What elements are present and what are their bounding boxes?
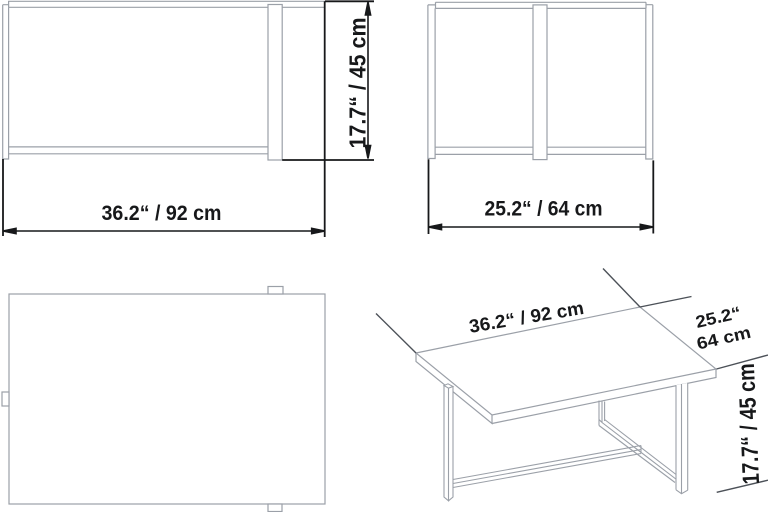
svg-text:25.2“ / 64 cm: 25.2“ / 64 cm: [485, 197, 603, 220]
svg-text:17.7“ / 45 cm: 17.7“ / 45 cm: [733, 363, 764, 485]
svg-text:17.7“ / 45 cm: 17.7“ / 45 cm: [345, 18, 371, 149]
svg-text:36.2“ / 92 cm: 36.2“ / 92 cm: [102, 202, 222, 225]
